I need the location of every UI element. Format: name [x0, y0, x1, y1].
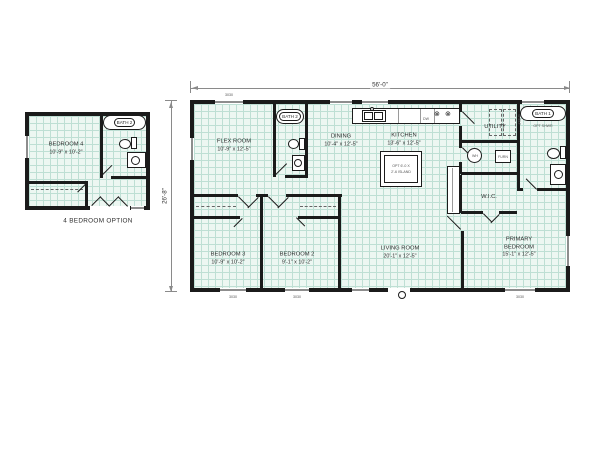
room-dims: 13'-6" x 12'-5" [387, 140, 420, 146]
room-label-bath2: BATH 2 [279, 112, 301, 122]
room-name: BEDROOM 4 [49, 141, 84, 147]
wall [305, 104, 308, 177]
wall [461, 172, 517, 175]
room-dims: 10'-9" x 12'-5" [217, 146, 250, 152]
wall [260, 197, 263, 288]
room-label-primary: PRIMARY BEDROOM 15'-1" x 12'-5" [494, 237, 544, 260]
faucet-icon [370, 107, 374, 111]
water-heater-label: WH [472, 154, 478, 158]
wall [286, 194, 342, 197]
wall [461, 140, 517, 143]
sink-bowl [364, 112, 373, 120]
room-label-utility: UTILITY [484, 124, 506, 132]
window-size-label: 3030 [229, 295, 237, 299]
window [190, 138, 194, 160]
room-name: LIVING ROOM [381, 245, 420, 251]
room-name: KITCHEN [391, 132, 416, 138]
wall [537, 188, 570, 191]
door-opening [90, 206, 130, 210]
room-dims: 20'-1" x 12'-5" [383, 253, 416, 259]
window [362, 100, 388, 104]
room-name: BEDROOM 2 [280, 251, 315, 257]
dimension-arrow [169, 100, 173, 108]
bathtub: BATH 2 [103, 115, 146, 130]
room-dims: 9'-1" x 10'-2" [282, 259, 312, 265]
width-dimension: 56'-0" [370, 82, 390, 89]
room-dims: 10'-9" x 10'-2" [49, 149, 82, 155]
sink-bowl [374, 112, 383, 120]
wall [29, 181, 87, 184]
room-dims: 10'-4" x 12'-5" [324, 141, 357, 147]
furnace-label: FURN [498, 155, 508, 159]
room-label-dining: DINING 10'-4" x 12'-5" [324, 133, 357, 148]
window [285, 288, 309, 292]
cabinet-divider [452, 168, 453, 212]
toilet-tank [560, 146, 566, 159]
dimension-arrow [190, 86, 198, 90]
dimension-arrow [169, 286, 173, 294]
room-label-bedroom2: BEDROOM 2 9'-1" x 10'-2" [280, 251, 315, 266]
bathtub: BATH 1 [520, 106, 566, 121]
room-label-living: LIVING ROOM 20'-1" x 12'-5" [381, 245, 420, 260]
toilet [119, 139, 131, 149]
entry-step-icon [398, 291, 406, 299]
wall [298, 216, 338, 219]
toilet-tank [131, 137, 137, 149]
wall [25, 112, 29, 210]
wall [111, 176, 149, 179]
room-dims: 15'-1" x 12'-5" [502, 252, 535, 258]
toilet [288, 139, 299, 149]
room-name: BEDROOM 3 [211, 251, 246, 257]
burner-icon: ⊗ [434, 111, 440, 118]
window [25, 136, 29, 158]
window [131, 206, 144, 210]
window [220, 288, 246, 292]
opt-shower-label: OPT SHWR [533, 124, 552, 128]
room-name: DINING [331, 133, 351, 139]
dryer [503, 109, 516, 136]
sink [554, 170, 563, 179]
wall [499, 211, 517, 214]
window-size-label: 3030 [516, 295, 524, 299]
wall [461, 211, 483, 214]
island-label: 2'-6 ISLAND [391, 170, 411, 174]
option-plan-caption: 4 BEDROOM OPTION [63, 218, 132, 225]
window [215, 100, 243, 104]
room-dims: 10'-9" x 10'-2" [211, 259, 244, 265]
wall [461, 231, 464, 292]
toilet [547, 148, 560, 159]
wall [194, 216, 240, 219]
room-name: FLEX ROOM [217, 138, 251, 144]
window [352, 288, 369, 292]
closet-rod [196, 206, 236, 207]
wall [517, 188, 523, 191]
room-label-option-bath2: BATH 2 [114, 118, 136, 128]
window-size-label: 3030 [293, 295, 301, 299]
wall [146, 112, 150, 210]
wall [285, 175, 308, 178]
wall [190, 194, 238, 197]
sink [294, 159, 302, 167]
dimension-line [171, 100, 172, 292]
window [566, 236, 570, 266]
window [505, 288, 535, 292]
bathtub: BATH 2 [276, 109, 304, 124]
window [522, 100, 544, 104]
window-size-label: 3030 [225, 93, 233, 97]
burner-icon: ⊗ [445, 111, 451, 118]
room-label-kitchen: KITCHEN 13'-6" x 12'-5" [387, 132, 420, 147]
window [330, 100, 352, 104]
closet-rod [31, 189, 83, 190]
room-name: PRIMARY BEDROOM [504, 237, 534, 251]
floorplan-sheet: BATH 2 BEDROOM 4 10'-9" x 10'-2" 4 BEDRO… [0, 0, 600, 463]
counter-divider [420, 109, 421, 123]
counter-divider [398, 109, 399, 123]
toilet-tank [299, 138, 305, 150]
kitchen-island-top [384, 155, 418, 183]
room-label-bedroom3: BEDROOM 3 10'-9" x 10'-2" [211, 251, 246, 266]
dimension-arrow [564, 86, 572, 90]
room-label-bedroom4: BEDROOM 4 10'-9" x 10'-2" [49, 141, 84, 156]
depth-dimension: 26'-8" [162, 186, 169, 206]
room-label-wic: W.I.C. [481, 194, 497, 202]
room-label-bath1: BATH 1 [532, 109, 554, 119]
wall [338, 197, 341, 288]
room-label-flex: FLEX ROOM 10'-9" x 12'-5" [217, 138, 251, 153]
dishwasher-label: DW [423, 117, 429, 121]
washer [489, 109, 502, 136]
closet-rod [300, 206, 336, 207]
island-label: OPT 6'-0 X [392, 164, 410, 168]
sink [131, 156, 140, 165]
wall [459, 175, 462, 213]
